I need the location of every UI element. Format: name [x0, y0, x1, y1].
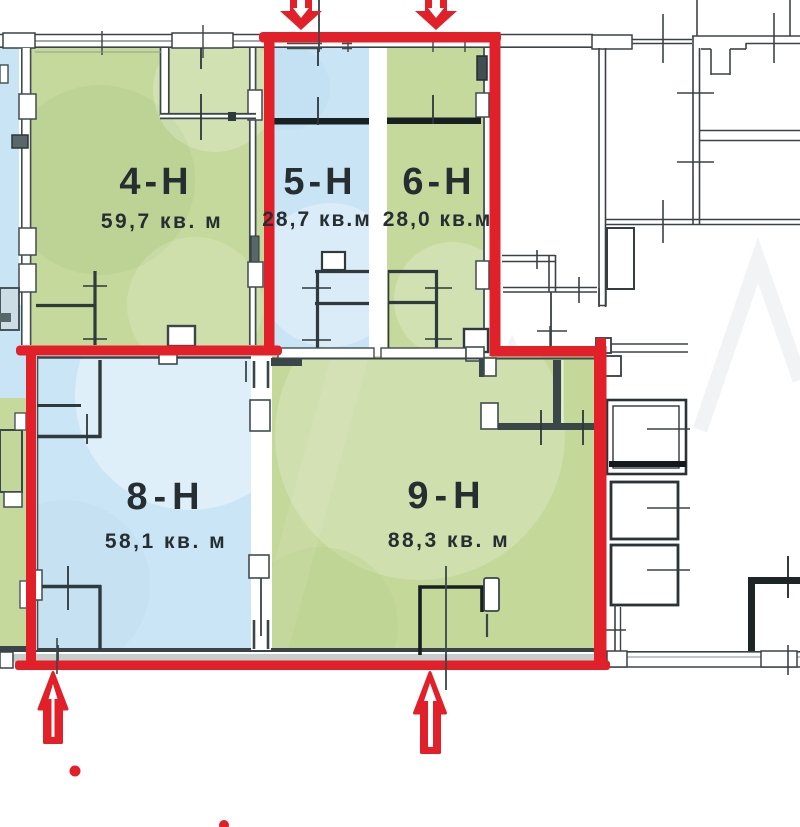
svg-text:28,0 кв.м: 28,0 кв.м	[383, 208, 493, 231]
svg-text:5-Н: 5-Н	[283, 161, 356, 203]
svg-text:9-Н: 9-Н	[407, 475, 486, 517]
svg-text:8-Н: 8-Н	[126, 476, 205, 518]
svg-text:6-Н: 6-Н	[402, 161, 475, 203]
svg-text:4-Н: 4-Н	[119, 161, 192, 203]
svg-text:28,7 кв.м: 28,7 кв.м	[262, 208, 372, 231]
svg-text:88,3 кв. м: 88,3 кв. м	[388, 529, 510, 552]
svg-text:59,7 кв. м: 59,7 кв. м	[101, 210, 223, 233]
svg-text:58,1 кв. м: 58,1 кв. м	[105, 530, 227, 553]
